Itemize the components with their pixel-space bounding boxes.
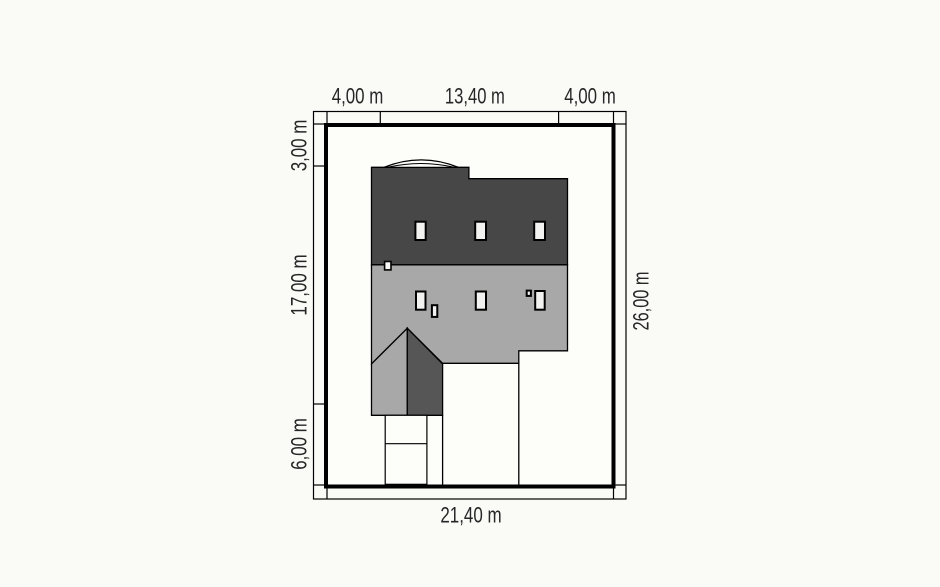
- svg-text:4,00 m: 4,00 m: [332, 84, 384, 109]
- svg-text:4,00 m: 4,00 m: [564, 84, 616, 109]
- svg-text:21,40 m: 21,40 m: [440, 503, 501, 528]
- svg-text:26,00 m: 26,00 m: [629, 272, 654, 331]
- svg-text:6,00 m: 6,00 m: [287, 418, 312, 470]
- svg-text:3,00 m: 3,00 m: [287, 120, 312, 172]
- svg-text:17,00 m: 17,00 m: [287, 254, 312, 315]
- svg-text:13,40 m: 13,40 m: [445, 84, 505, 109]
